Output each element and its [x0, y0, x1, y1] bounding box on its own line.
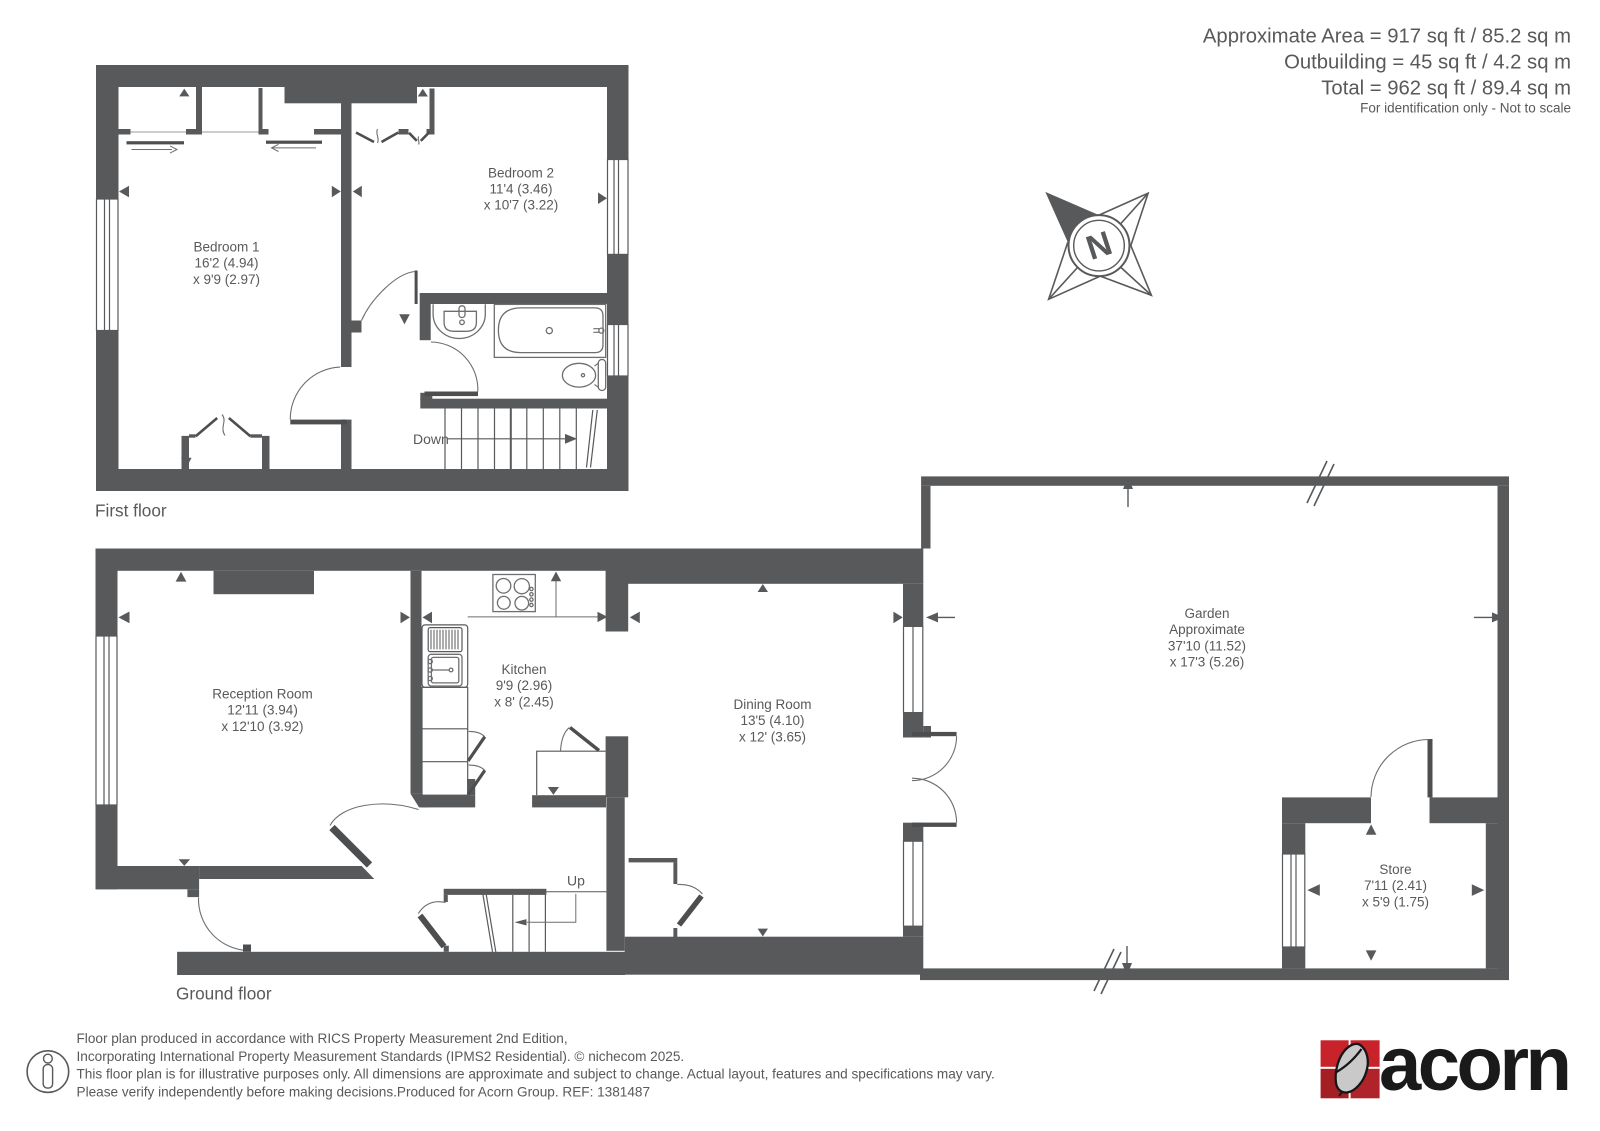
svg-text:13'5 (4.10): 13'5 (4.10) — [740, 713, 804, 728]
svg-text:Bedroom 1: Bedroom 1 — [193, 240, 259, 255]
svg-text:x 17'3 (5.26): x 17'3 (5.26) — [1170, 655, 1245, 670]
svg-text:16'2 (4.94): 16'2 (4.94) — [194, 256, 258, 271]
svg-text:12'11 (3.94): 12'11 (3.94) — [227, 703, 298, 718]
svg-text:Approximate Area = 917 sq ft /: Approximate Area = 917 sq ft / 85.2 sq m — [1203, 26, 1571, 48]
svg-text:Dining Room: Dining Room — [733, 697, 811, 712]
svg-text:Floor plan produced in accorda: Floor plan produced in accordance with R… — [77, 1031, 568, 1046]
svg-text:Ground floor: Ground floor — [176, 984, 272, 1004]
svg-text:For identification only - Not: For identification only - Not to scale — [1360, 101, 1571, 116]
svg-text:x 12'10 (3.92): x 12'10 (3.92) — [221, 719, 303, 734]
svg-text:x 12' (3.65): x 12' (3.65) — [739, 729, 806, 744]
svg-text:Reception Room: Reception Room — [212, 687, 313, 702]
svg-text:Garden: Garden — [1184, 606, 1229, 621]
svg-text:x 9'9 (2.97): x 9'9 (2.97) — [193, 272, 260, 287]
svg-text:First floor: First floor — [95, 501, 167, 521]
svg-text:Approximate: Approximate — [1169, 622, 1245, 637]
svg-text:x 10'7 (3.22): x 10'7 (3.22) — [484, 198, 559, 213]
svg-text:Bedroom 2: Bedroom 2 — [488, 165, 554, 180]
svg-text:Total = 962 sq ft / 89.4 sq m: Total = 962 sq ft / 89.4 sq m — [1321, 78, 1571, 100]
svg-text:Down: Down — [413, 431, 449, 447]
svg-text:Please verify independently be: Please verify independently before makin… — [77, 1084, 651, 1099]
svg-text:acorn: acorn — [1379, 1022, 1568, 1107]
svg-text:Up: Up — [567, 873, 585, 889]
svg-text:Outbuilding = 45 sq ft / 4.2 s: Outbuilding = 45 sq ft / 4.2 sq m — [1284, 52, 1571, 74]
svg-text:x 8' (2.45): x 8' (2.45) — [494, 694, 554, 709]
svg-text:x 5'9 (1.75): x 5'9 (1.75) — [1362, 894, 1429, 909]
svg-text:This floor plan is for illustr: This floor plan is for illustrative purp… — [77, 1067, 995, 1082]
svg-text:Store: Store — [1379, 862, 1411, 877]
svg-text:11'4 (3.46): 11'4 (3.46) — [489, 182, 552, 197]
svg-text:Incorporating International Pr: Incorporating International Property Mea… — [77, 1049, 685, 1064]
svg-text:9'9 (2.96): 9'9 (2.96) — [496, 678, 553, 693]
svg-text:Kitchen: Kitchen — [501, 662, 546, 677]
svg-text:7'11 (2.41): 7'11 (2.41) — [1364, 878, 1427, 893]
svg-text:37'10 (11.52): 37'10 (11.52) — [1168, 638, 1246, 653]
